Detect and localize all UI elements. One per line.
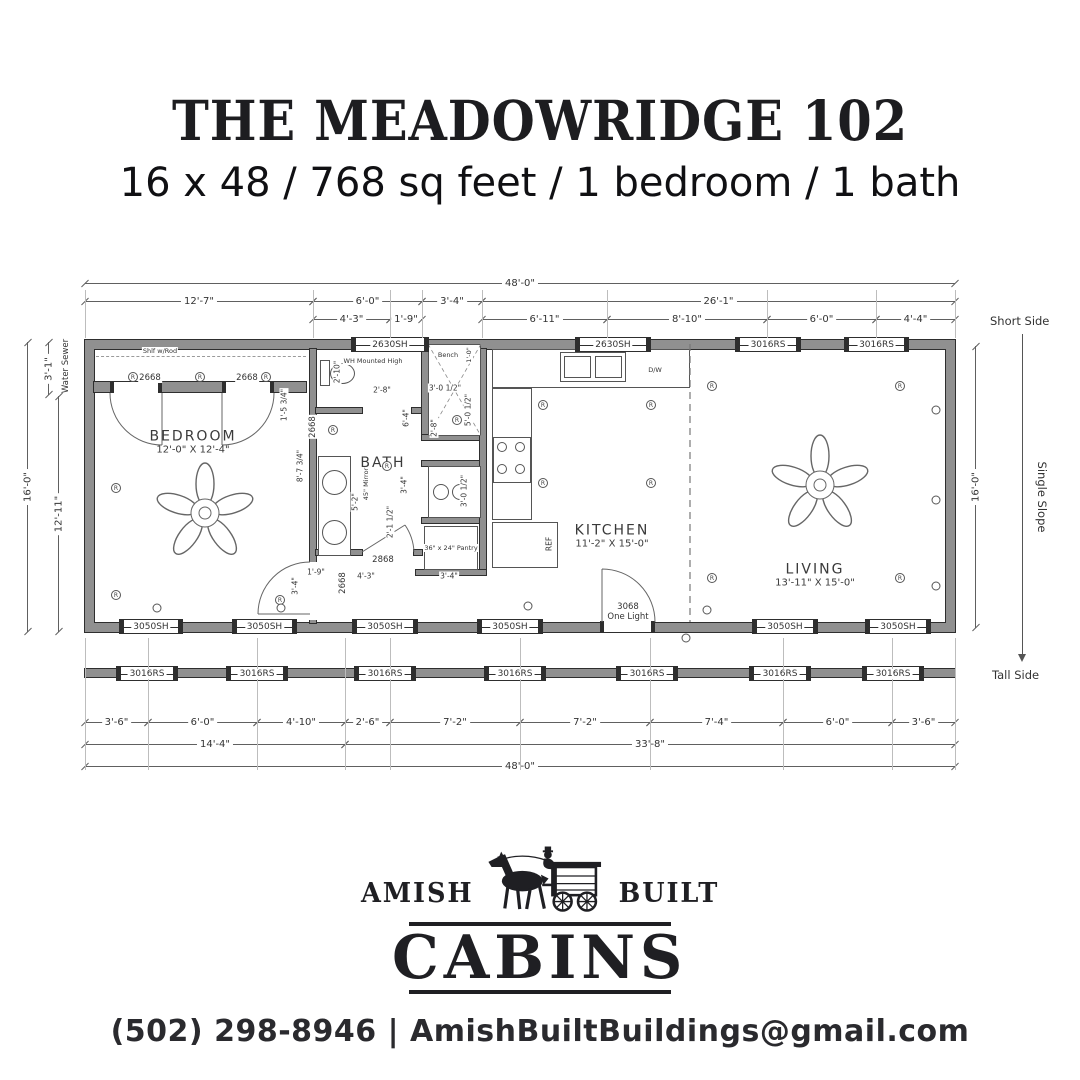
window-symbol: 3016RS [117,667,177,680]
window-symbol: 3016RS [227,667,287,680]
dimension-line: 12'-11" [58,396,59,632]
window-symbol: 3016RS [750,667,810,680]
hall-dim: 2'-8" [372,386,392,395]
window-symbol: 3050SH [478,620,542,633]
window-symbol-label: 2630SH [370,340,409,350]
buggy [550,862,601,911]
window-symbol-label: 3050SH [365,622,404,632]
window-symbol: 3016RS [617,667,677,680]
tall-side-label: Tall Side [992,668,1039,682]
dimension-line: 7'-2" [520,722,650,723]
kitchen-name: KITCHEN [575,523,650,539]
dimension-line: 3'-4" [422,301,482,302]
dimension-line-label: 8'-10" [669,314,705,326]
entry-dim: 3'-4" [439,572,459,581]
wall-dim: 8'-7 3/4" [296,449,305,483]
receptacle-symbol: R [111,590,121,600]
dimension-line-label: 7'-4" [702,717,732,729]
receptacle-symbol: R [328,425,338,435]
receptacle-symbol: R [707,573,717,583]
dimension-line: 3'-1" [48,342,49,395]
receptacle-symbol: R [646,478,656,488]
corner-dim: 3'-4" [291,576,300,596]
extension-line [892,638,893,770]
receptacle-symbol: R [895,573,905,583]
dimension-line-label: 1'-9" [391,314,421,326]
light-symbol [153,604,162,613]
shower-depth-dim: 2'-8" [430,418,439,438]
window-symbol-label: 2630SH [593,340,632,350]
dimension-line: 48'-0" [85,283,955,284]
dimension-line: 6'-0" [148,722,257,723]
window-symbol-label: 3016RS [496,669,535,679]
extension-line [422,290,423,338]
dimension-line-label: 4'-10" [283,717,319,729]
extension-line [390,290,391,338]
light-symbol [682,634,691,643]
extension-line [257,638,258,770]
vanity-sink [322,520,347,545]
laundry-dim: 3'-0 1/2" [460,474,469,508]
dimension-line: 6'-0" [767,319,876,320]
dimension-line-label: 12'-7" [181,296,217,308]
dimension-line-label: 6'-11" [526,314,562,326]
extension-line [313,290,314,338]
dimension-line: 6'-0" [783,722,892,723]
vanity-sink [322,470,347,495]
receptacle-symbol: R [538,478,548,488]
laundry-hookup [433,484,449,500]
dimension-line-label: 3'-1" [44,354,55,384]
closet-door-label: 2668 [138,373,162,383]
living-name: LIVING [775,562,855,578]
window-symbol-label: 3016RS [366,669,405,679]
closet-shelf-note: Shlf w/Rod [142,347,178,355]
closet-door-label: 2668 [235,373,259,383]
window-symbol-label: 3016RS [761,669,800,679]
dimension-line: 8'-10" [607,319,767,320]
dimension-line-label: 3'-6" [102,717,132,729]
dimension-line-label: 16'-0" [23,469,34,505]
logo-built-text: BUILT [619,878,720,921]
bedroom-size: 12'-0" X 12'-4" [149,445,236,456]
window-symbol-label: 3016RS [128,669,167,679]
extension-line [148,638,149,770]
slope-direction-arrow [1022,334,1023,660]
extension-line [85,638,86,770]
extension-line [767,290,768,338]
light-symbol [932,496,941,505]
extension-line [783,638,784,770]
window-symbol: 3050SH [753,620,817,633]
stove-burner [497,464,507,474]
window-symbol: 3050SH [353,620,417,633]
dimension-line-label: 3'-6" [909,717,939,729]
window-symbol: 3016RS [736,338,800,351]
dimension-line: 26'-1" [482,301,955,302]
window-symbol-label: 3050SH [131,622,170,632]
dimension-line: 16'-0" [975,346,976,628]
dimension-line: 2'-6" [345,722,390,723]
dimension-line-label: 6'-0" [807,314,837,326]
receptacle-symbol: R [452,415,462,425]
dimension-line: 4'-3" [313,319,390,320]
extension-line [650,638,651,770]
light-symbol [932,582,941,591]
mirror-note: 45" Mirror [362,467,370,501]
dimension-line: 3'-6" [85,722,148,723]
window-symbol: 3050SH [120,620,182,633]
window-symbol-label: 3050SH [878,622,917,632]
dimension-line-label: 4'-3" [337,314,367,326]
page-title: THE MEADOWRIDGE 102 [54,88,1026,153]
bath-width-dim: 3'-4" [400,475,409,495]
extension-line [876,290,877,338]
window-symbol-label: 3016RS [238,669,277,679]
closet-door-opening [222,382,274,393]
dimension-line-label: 3'-4" [437,296,467,308]
extension-line [345,638,346,770]
stove-burner [497,442,507,452]
dimension-line-label: 26'-1" [700,296,736,308]
toilet-room-wall [316,408,362,413]
receptacle-symbol: R [195,372,205,382]
single-slope-label: Single Slope [1035,462,1049,533]
kitchen-size: 11'-2" X 15'-0" [575,539,650,550]
water-sewer-label: Water Sewer [61,338,71,394]
receptacle-symbol: R [646,400,656,410]
extension-line [955,290,956,338]
logo-top-row: AMISH [358,845,722,921]
extension-line [607,290,608,338]
window-symbol: 2630SH [352,338,428,351]
window-symbol-label: 3016RS [874,669,913,679]
wall-dim: 1'-5 3/4" [280,388,289,422]
entry-dim: 1'-9" [306,568,326,577]
extension-line [482,290,483,338]
dimension-line-label: 6'-0" [823,717,853,729]
short-side-label: Short Side [990,314,1049,328]
dimension-line: 14'-4" [85,744,345,745]
dimension-line-label: 12'-11" [54,493,65,535]
window-symbol-label: 3016RS [628,669,667,679]
bath-hall-wall [414,550,422,555]
window-symbol: 3050SH [866,620,930,633]
room-kitchen: KITCHEN 11'-2" X 15'-0" [575,523,650,550]
living-size: 13'-11" X 15'-0" [775,578,855,589]
kitchen-sink-basin [564,356,591,378]
bench-dim: 1'-0" [465,346,473,363]
closet-door-opening [110,382,162,393]
kitchen-sink-basin [595,356,622,378]
pantry-note: 36" x 24" Pantry [423,544,478,552]
dimension-line: 4'-4" [876,319,955,320]
receptacle-symbol: R [895,381,905,391]
closet-shelf-line [96,356,306,357]
dimension-line-label: 48'-0" [502,278,538,290]
receptacle-symbol: R [128,372,138,382]
dimension-line: 6'-11" [482,319,607,320]
bath-door-label: 2868 [371,555,395,565]
dimension-line: 7'-4" [650,722,783,723]
front-door-label: 3068 [616,602,640,612]
window-symbol: 3016RS [863,667,923,680]
light-symbol [932,406,941,415]
bedroom-name: BEDROOM [149,429,236,445]
front-door-label: One Light [606,612,649,622]
dimension-line: 6'-0" [313,301,422,302]
room-living: LIVING 13'-11" X 15'-0" [775,562,855,589]
light-symbol [277,604,286,613]
window-symbol-label: 3050SH [490,622,529,632]
page-subtitle: 16 x 48 / 768 sq feet / 1 bedroom / 1 ba… [0,160,1080,206]
vanity-dim: 5'-2" [351,492,360,512]
window-symbol-label: 3016RS [749,340,788,350]
dimension-line: 7'-2" [390,722,520,723]
bench-note: Bench [437,351,459,359]
window-symbol-label: 3050SH [765,622,804,632]
window-symbol: 3016RS [485,667,545,680]
dimension-line: 1'-9" [390,319,422,320]
window-symbol: 3016RS [355,667,415,680]
bath-side-door-label: 2668 [338,571,348,595]
bedroom-door-label: 2668 [308,415,318,439]
window-symbol: 3050SH [233,620,296,633]
window-symbol: 2630SH [576,338,650,351]
floor-plan: BEDROOM 12'-0" X 12'-4" BATH KITCHEN 11'… [0,270,1080,790]
laundry-wall [422,518,486,523]
dimension-line: 3'-6" [892,722,955,723]
logo-amish-text: AMISH [361,878,474,921]
window-symbol-label: 3050SH [245,622,284,632]
window-symbol: 3016RS [845,338,908,351]
dimension-line: 12'-7" [85,301,313,302]
dimension-line-label: 16'-0" [971,469,982,505]
stove-burner [515,464,525,474]
receptacle-symbol: R [111,483,121,493]
receptacle-symbol: R [538,400,548,410]
light-symbol [524,602,533,611]
shower-height-dim: 5'-0 1/2" [464,393,473,427]
dimension-line-label: 14'-4" [197,739,233,751]
dimension-line-label: 2'-6" [353,717,383,729]
dimension-line: 16'-0" [27,342,28,632]
clearance-dim: 2'-1 1/2" [386,505,395,539]
logo-cabins-text: CABINS [392,927,687,989]
toilet-tank [320,360,330,386]
toilet-dim: 2'-10" [333,360,342,385]
entry-dim: 4'-3" [356,572,376,581]
room-bedroom: BEDROOM 12'-0" X 12'-4" [149,429,236,456]
dishwasher-note: D/W [647,366,663,374]
front-door-opening [600,621,655,632]
receptacle-symbol: R [707,381,717,391]
dimension-line-label: 7'-2" [570,717,600,729]
bath-length-dim: 6'-4" [402,408,411,428]
dimension-line-label: 7'-2" [440,717,470,729]
dimension-line: 4'-10" [257,722,345,723]
receptacle-symbol: R [261,372,271,382]
water-heater-note: WH Mounted High [343,357,404,365]
shower-width-dim: 3'-0 1/2" [428,384,462,393]
contact-info: (502) 298-8946 | AmishBuiltBuildings@gma… [0,1014,1080,1049]
extension-line [520,638,521,770]
window-symbol-label: 3016RS [857,340,896,350]
light-symbol [703,606,712,615]
extension-line [955,638,956,770]
stove-burner [515,442,525,452]
dimension-line-label: 6'-0" [353,296,383,308]
refrigerator-note: REF [545,536,554,552]
dimension-line-label: 4'-4" [901,314,931,326]
horse-and-buggy-icon [482,845,610,921]
company-logo: AMISH [0,845,1080,995]
receptacle-symbol: R [382,461,392,471]
extension-line [390,638,391,770]
dimension-line-label: 6'-0" [188,717,218,729]
extension-line [85,290,86,338]
driver [543,847,554,870]
